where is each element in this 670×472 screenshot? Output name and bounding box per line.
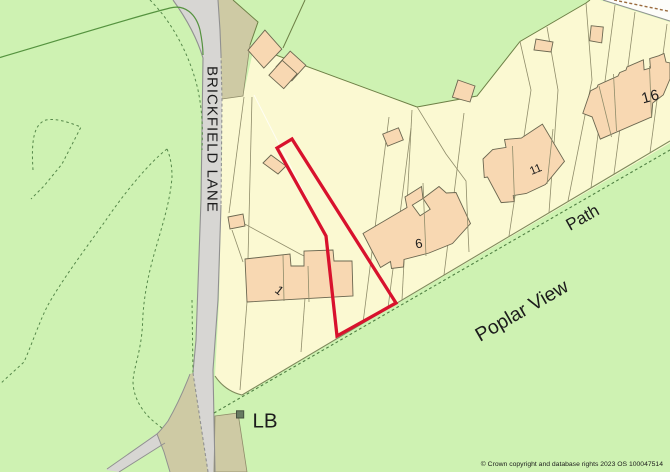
svg-text:LB: LB bbox=[253, 410, 278, 433]
svg-text:© Crown copyright and database: © Crown copyright and database rights 20… bbox=[481, 460, 663, 468]
svg-text:BRICKFIELD LANE: BRICKFIELD LANE bbox=[204, 66, 221, 213]
